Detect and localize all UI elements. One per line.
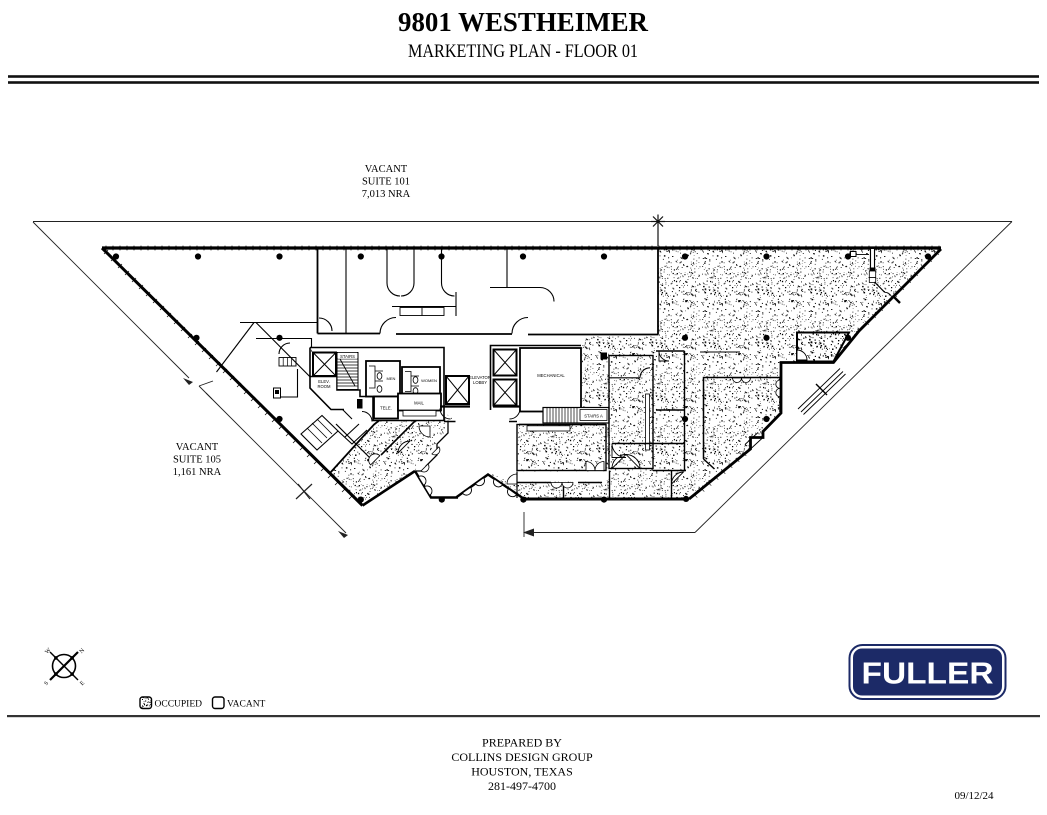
svg-text:PREPARED BY: PREPARED BY (482, 736, 562, 750)
svg-text:HOUSTON, TEXAS: HOUSTON, TEXAS (471, 765, 573, 779)
svg-text:VACANT: VACANT (227, 700, 266, 710)
svg-text:VACANT: VACANT (365, 164, 408, 175)
svg-text:TELE.: TELE. (380, 406, 392, 411)
svg-text:FULLER: FULLER (862, 656, 994, 691)
svg-text:OCCUPIED: OCCUPIED (155, 700, 203, 710)
svg-text:VACANT: VACANT (176, 442, 219, 453)
svg-text:MAIL: MAIL (414, 401, 424, 406)
svg-text:1,161 NRA: 1,161 NRA (173, 467, 222, 478)
svg-text:S: S (43, 680, 50, 687)
svg-text:MECHANICAL: MECHANICAL (537, 373, 565, 378)
svg-text:9801 WESTHEIMER: 9801 WESTHEIMER (398, 7, 648, 37)
svg-text:LOBBY: LOBBY (473, 380, 487, 385)
svg-text:ROOM: ROOM (317, 384, 331, 389)
svg-text:281-497-4700: 281-497-4700 (488, 779, 556, 793)
svg-text:SUITE 105: SUITE 105 (173, 455, 221, 466)
svg-text:STAIRS: STAIRS (340, 354, 355, 359)
svg-text:MARKETING PLAN - FLOOR 01: MARKETING PLAN - FLOOR 01 (408, 41, 638, 62)
svg-text:E: E (79, 680, 86, 687)
svg-text:7,013 NRA: 7,013 NRA (362, 189, 411, 200)
svg-text:SUITE 101: SUITE 101 (362, 177, 410, 188)
svg-text:WOMEN: WOMEN (421, 378, 437, 383)
svg-text:09/12/24: 09/12/24 (954, 790, 994, 802)
svg-text:COLLINS DESIGN GROUP: COLLINS DESIGN GROUP (451, 750, 593, 764)
svg-text:STAIRS A: STAIRS A (584, 414, 603, 419)
svg-text:MEN: MEN (387, 376, 396, 381)
svg-text:N: N (79, 647, 87, 655)
